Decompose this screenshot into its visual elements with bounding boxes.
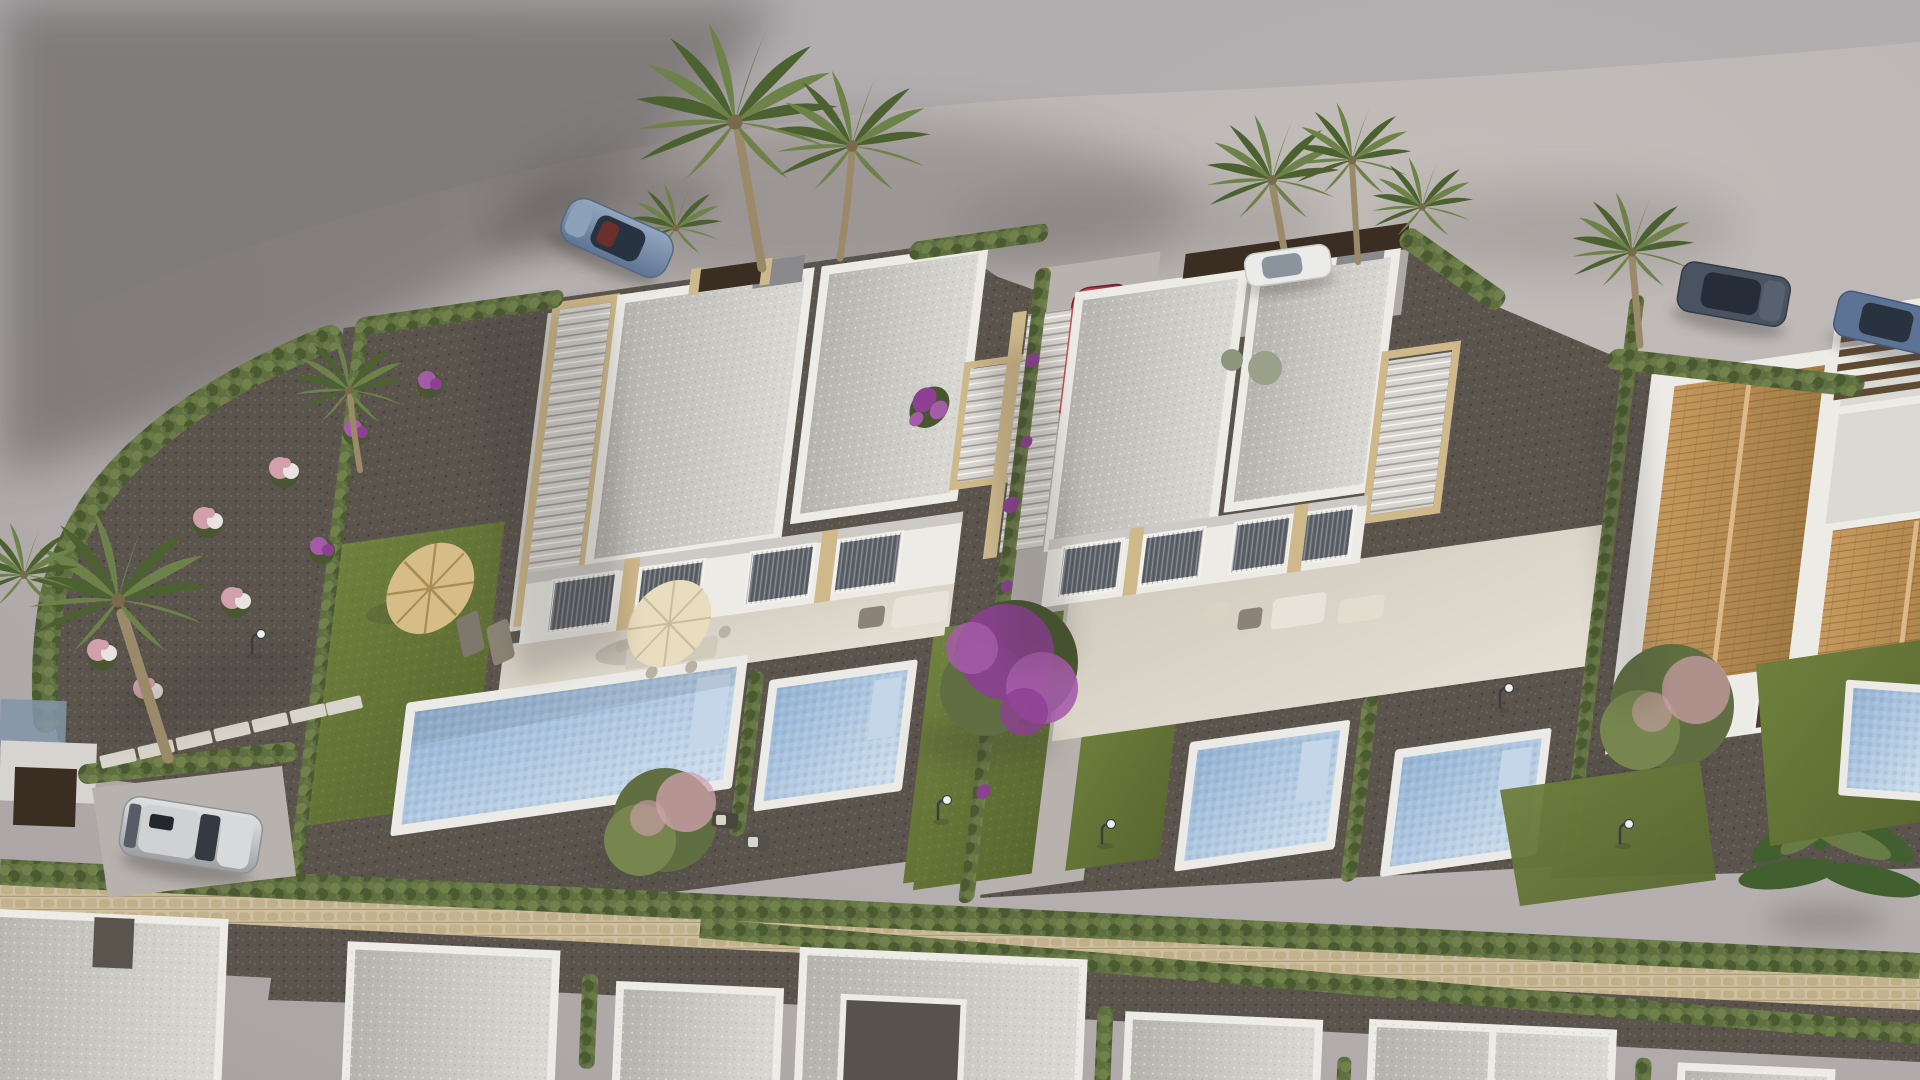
glass-skylight	[0, 699, 67, 747]
bottom-house-6	[1366, 1023, 1613, 1080]
plant-shadow	[1766, 904, 1886, 936]
car-roof	[137, 803, 202, 859]
pool-left-2	[753, 659, 918, 811]
bottom-house-3	[613, 985, 780, 1080]
inner-courtyard	[840, 997, 964, 1080]
pool-med	[1838, 679, 1920, 801]
bottom-house-5	[1123, 1015, 1319, 1080]
silver-shrub	[1221, 349, 1243, 371]
silver-shrub	[1248, 351, 1282, 385]
bottom-house-7	[1676, 1066, 1832, 1080]
garage-gate	[13, 767, 77, 827]
bottom-house-1	[0, 912, 224, 1080]
aerial-render: Photorealistic aerial rendering of a res…	[0, 0, 1920, 1080]
bottom-house-2	[343, 945, 556, 1080]
pool-right-1	[1174, 720, 1350, 872]
render-canvas	[0, 0, 1920, 1080]
bottom-house-4	[795, 951, 1084, 1080]
